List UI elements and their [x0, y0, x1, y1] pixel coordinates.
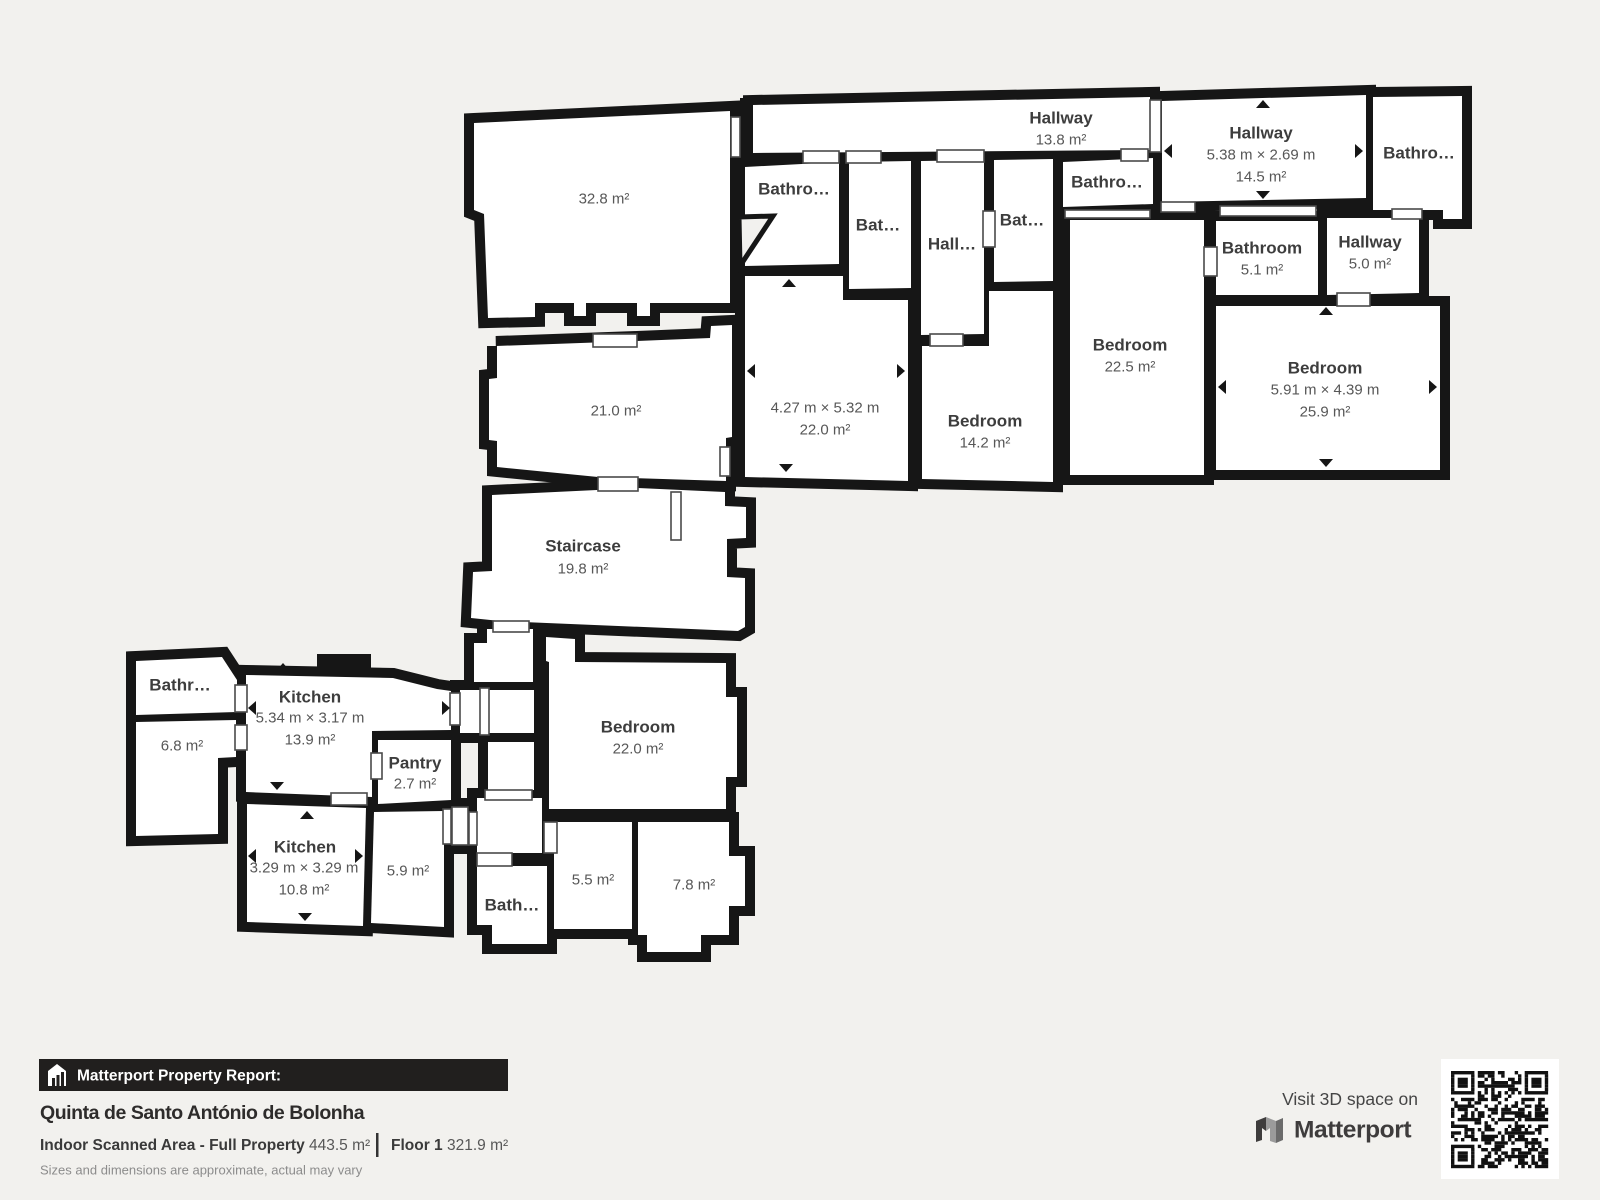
svg-text:21.0 m²: 21.0 m²: [591, 403, 642, 420]
svg-text:Matterport: Matterport: [1294, 1117, 1411, 1144]
svg-text:Bedroom: Bedroom: [601, 718, 676, 737]
svg-text:14.5 m²: 14.5 m²: [1236, 169, 1287, 186]
svg-text:5.34 m × 3.17 m: 5.34 m × 3.17 m: [256, 710, 365, 727]
svg-text:Bathroom: Bathroom: [1222, 239, 1302, 258]
svg-text:22.0 m²: 22.0 m²: [800, 422, 851, 439]
svg-text:Bat…: Bat…: [856, 216, 900, 235]
svg-text:25.9 m²: 25.9 m²: [1300, 404, 1351, 421]
svg-text:3.29 m × 3.29 m: 3.29 m × 3.29 m: [250, 860, 359, 877]
svg-text:Bedroom: Bedroom: [1288, 359, 1363, 378]
svg-text:5.1 m²: 5.1 m²: [1241, 262, 1284, 279]
svg-text:14.2 m²: 14.2 m²: [960, 435, 1011, 452]
svg-text:Sizes and dimensions are appro: Sizes and dimensions are approximate, ac…: [40, 1163, 363, 1178]
svg-text:4.27 m × 5.32 m: 4.27 m × 5.32 m: [771, 400, 880, 417]
svg-text:5.5 m²: 5.5 m²: [572, 872, 615, 889]
svg-text:22.5 m²: 22.5 m²: [1105, 359, 1156, 376]
svg-text:Staircase: Staircase: [545, 537, 621, 556]
svg-text:Hallway: Hallway: [1229, 124, 1293, 143]
svg-text:Visit 3D space on: Visit 3D space on: [1282, 1089, 1418, 1109]
svg-text:13.8 m²: 13.8 m²: [1036, 132, 1087, 149]
svg-text:Kitchen: Kitchen: [279, 688, 341, 707]
svg-text:Kitchen: Kitchen: [274, 838, 336, 857]
svg-text:32.8 m²: 32.8 m²: [579, 191, 630, 208]
svg-text:Hallway: Hallway: [1029, 109, 1093, 128]
svg-text:Bathro…: Bathro…: [1383, 144, 1455, 163]
svg-text:7.8 m²: 7.8 m²: [673, 877, 716, 894]
svg-text:13.9 m²: 13.9 m²: [285, 732, 336, 749]
svg-text:Floor 1 321.9 m²: Floor 1 321.9 m²: [391, 1137, 508, 1154]
svg-text:Bathr…: Bathr…: [149, 676, 210, 695]
svg-text:Bathro…: Bathro…: [758, 180, 830, 199]
svg-text:Bedroom: Bedroom: [1093, 336, 1168, 355]
svg-text:10.8 m²: 10.8 m²: [279, 882, 330, 899]
svg-text:Bedroom: Bedroom: [948, 412, 1023, 431]
svg-text:Bath…: Bath…: [485, 896, 540, 915]
svg-text:22.0 m²: 22.0 m²: [613, 741, 664, 758]
svg-text:Hallway: Hallway: [1338, 233, 1402, 252]
svg-text:Indoor Scanned Area - Full Pro: Indoor Scanned Area - Full Property 443.…: [40, 1137, 370, 1154]
svg-text:Pantry: Pantry: [389, 754, 442, 773]
svg-text:Matterport Property Report:: Matterport Property Report:: [77, 1068, 281, 1085]
svg-text:5.91 m × 4.39 m: 5.91 m × 4.39 m: [1271, 382, 1380, 399]
svg-text:Bat…: Bat…: [1000, 211, 1044, 230]
svg-text:19.8 m²: 19.8 m²: [558, 561, 609, 578]
svg-text:5.38 m × 2.69 m: 5.38 m × 2.69 m: [1207, 147, 1316, 164]
svg-text:5.9 m²: 5.9 m²: [387, 863, 430, 880]
svg-text:6.8 m²: 6.8 m²: [161, 738, 204, 755]
svg-text:Quinta de Santo António de Bol: Quinta de Santo António de Bolonha: [40, 1102, 365, 1124]
svg-text:Bathro…: Bathro…: [1071, 173, 1143, 192]
svg-text:Hall…: Hall…: [928, 235, 976, 254]
svg-text:2.7 m²: 2.7 m²: [394, 776, 437, 793]
svg-text:5.0 m²: 5.0 m²: [1349, 256, 1392, 273]
